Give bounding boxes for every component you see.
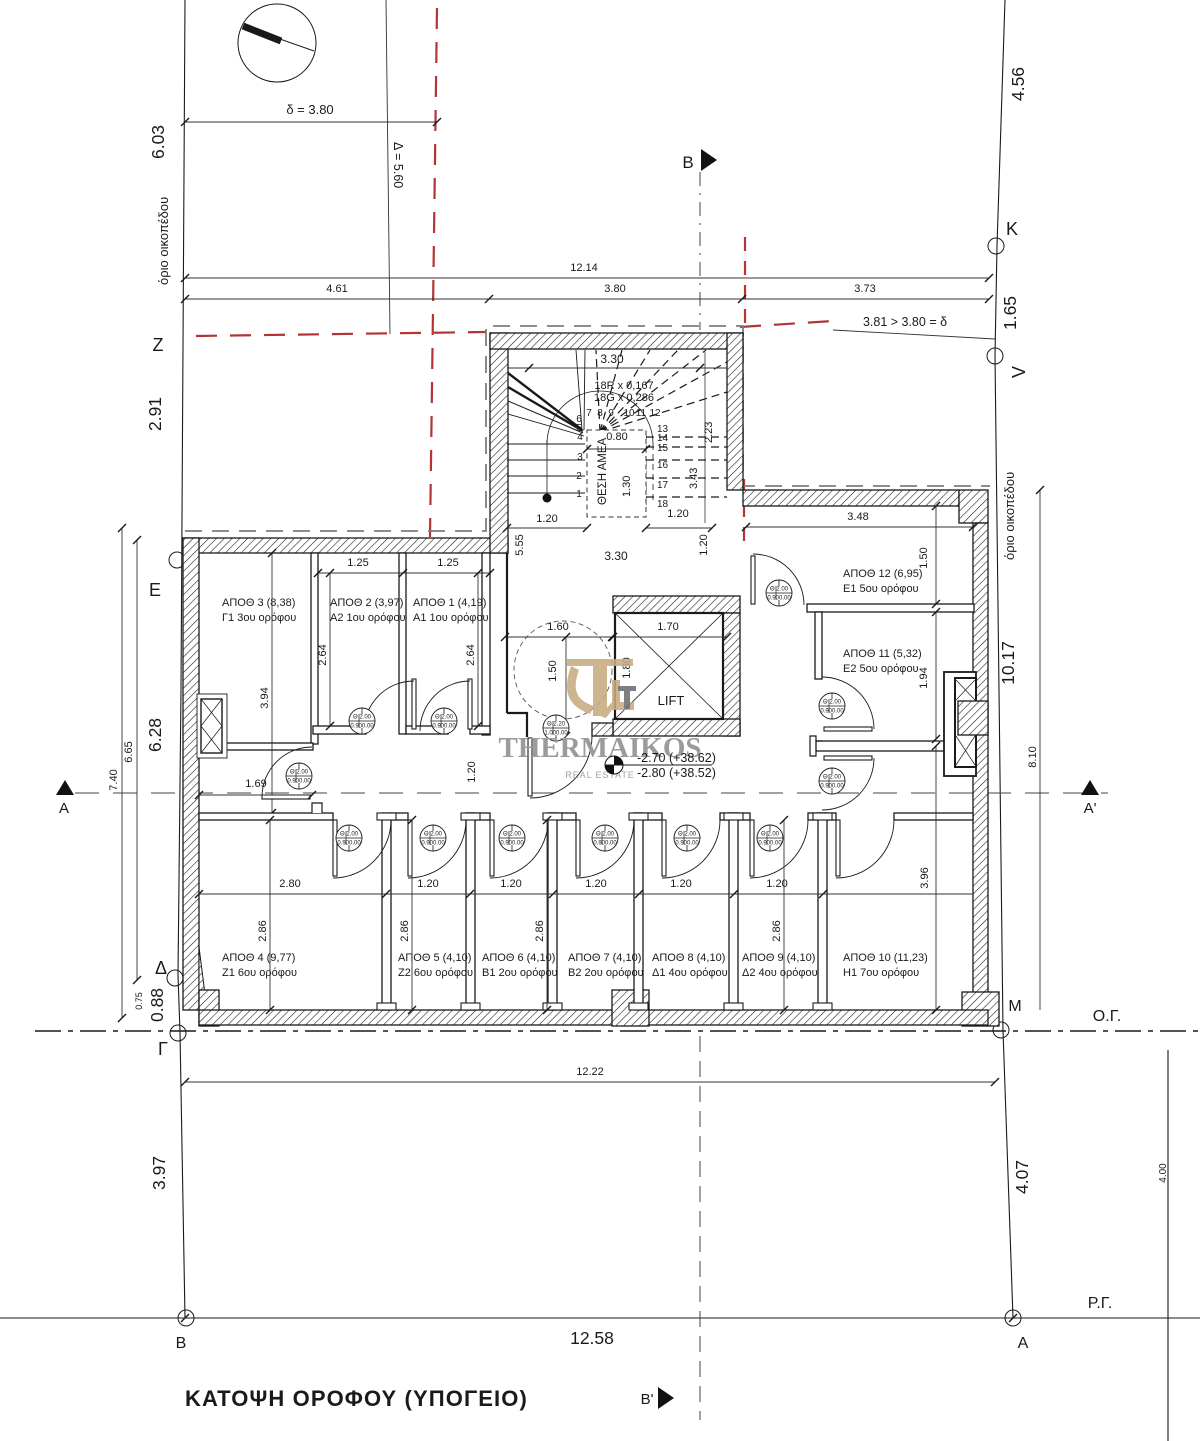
svg-text:B': B' [641, 1391, 654, 1408]
svg-text:12.14: 12.14 [570, 262, 598, 274]
svg-text:3.94: 3.94 [259, 687, 271, 708]
svg-text:7.40: 7.40 [108, 769, 120, 790]
svg-text:1.20: 1.20 [698, 534, 710, 555]
svg-text:ΑΠΟΘ 4 (9,77): ΑΠΟΘ 4 (9,77) [222, 952, 295, 964]
svg-text:3.80: 3.80 [604, 283, 625, 295]
svg-text:K: K [1006, 219, 1018, 239]
svg-text:6.65: 6.65 [123, 741, 135, 762]
svg-text:Δ = 5.60: Δ = 5.60 [391, 142, 405, 188]
svg-text:Η1 7ου ορόφου: Η1 7ου ορόφου [843, 967, 919, 979]
svg-text:1.69: 1.69 [245, 778, 266, 790]
svg-text:3.30: 3.30 [604, 549, 628, 563]
svg-text:A: A [59, 800, 69, 817]
svg-text:12.22: 12.22 [576, 1066, 604, 1078]
svg-text:3.97: 3.97 [149, 1156, 169, 1190]
svg-text:Λ: Λ [1008, 366, 1028, 378]
svg-text:2.86: 2.86 [257, 920, 269, 941]
svg-text:-2.70 (+38.62): -2.70 (+38.62) [637, 751, 716, 765]
svg-text:6.03: 6.03 [148, 125, 168, 159]
svg-text:0.80: 0.80 [606, 431, 627, 443]
svg-text:1.20: 1.20 [466, 761, 478, 782]
svg-text:2: 2 [576, 471, 582, 482]
svg-text:LIFT: LIFT [658, 693, 685, 708]
svg-text:Γ: Γ [158, 1039, 168, 1059]
svg-text:δ = 3.80: δ = 3.80 [286, 102, 333, 117]
svg-text:18R x 0,167: 18R x 0,167 [594, 380, 653, 392]
svg-text:ΑΠΟΘ 9 (4,10): ΑΠΟΘ 9 (4,10) [742, 952, 815, 964]
svg-text:ΑΠΟΘ 12 (6,95): ΑΠΟΘ 12 (6,95) [843, 568, 922, 580]
svg-text:Δ: Δ [155, 958, 167, 978]
svg-text:2.86: 2.86 [399, 920, 411, 941]
svg-text:B: B [682, 153, 693, 172]
svg-text:1.65: 1.65 [1000, 296, 1020, 330]
svg-text:0.900.00: 0.900.00 [350, 724, 374, 730]
svg-text:0.900.00: 0.900.00 [421, 841, 445, 847]
svg-text:B: B [176, 1335, 187, 1352]
svg-text:ΑΠΟΘ 2 (3,97): ΑΠΟΘ 2 (3,97) [330, 597, 403, 609]
svg-text:Z: Z [153, 335, 164, 355]
svg-text:15: 15 [657, 443, 669, 454]
svg-text:A: A [1018, 1335, 1029, 1352]
svg-text:0.900.00: 0.900.00 [337, 841, 361, 847]
svg-text:Ζ1 6ου ορόφου: Ζ1 6ου ορόφου [222, 967, 297, 979]
svg-text:0.88: 0.88 [147, 988, 167, 1022]
svg-text:Θ 2.00: Θ 2.00 [770, 587, 789, 593]
svg-text:Θ 2.00: Θ 2.00 [340, 832, 359, 838]
svg-text:1.20: 1.20 [417, 878, 438, 890]
svg-text:όριο οικοπέδου: όριο οικοπέδου [156, 197, 171, 285]
svg-text:2.80: 2.80 [279, 878, 300, 890]
svg-text:0.900.00: 0.900.00 [767, 596, 791, 602]
svg-text:2.91: 2.91 [145, 397, 165, 431]
svg-text:Θ 2.00: Θ 2.00 [678, 832, 697, 838]
svg-text:7: 7 [586, 408, 592, 419]
svg-text:ΑΠΟΘ 8 (4,10): ΑΠΟΘ 8 (4,10) [652, 952, 725, 964]
svg-text:-2.80 (+38.52): -2.80 (+38.52) [637, 766, 716, 780]
svg-text:2.86: 2.86 [771, 920, 783, 941]
svg-text:4.07: 4.07 [1012, 1160, 1032, 1194]
svg-text:A': A' [1084, 800, 1097, 817]
svg-text:Θ 2.00: Θ 2.00 [424, 832, 443, 838]
svg-text:0.900.00: 0.900.00 [758, 841, 782, 847]
svg-text:3.48: 3.48 [847, 511, 868, 523]
svg-text:Δ1 4ου ορόφου: Δ1 4ου ορόφου [652, 967, 728, 979]
svg-text:3.96: 3.96 [919, 867, 931, 888]
svg-text:Ρ.Γ.: Ρ.Γ. [1088, 1295, 1113, 1312]
svg-text:16: 16 [657, 460, 669, 471]
svg-text:Θ 2.00: Θ 2.00 [290, 770, 309, 776]
svg-text:1.60: 1.60 [547, 621, 568, 633]
svg-text:1: 1 [576, 489, 582, 500]
svg-text:11: 11 [636, 408, 647, 419]
svg-text:Θ 2.00: Θ 2.00 [435, 715, 454, 721]
svg-text:17: 17 [657, 480, 669, 491]
svg-text:Ζ2 6ου ορόφου: Ζ2 6ου ορόφου [398, 967, 473, 979]
svg-text:1.70: 1.70 [657, 621, 678, 633]
svg-text:0.900.00: 0.900.00 [593, 841, 617, 847]
svg-text:2.64: 2.64 [317, 644, 329, 665]
svg-text:ΑΠΟΘ 5 (4,10): ΑΠΟΘ 5 (4,10) [398, 952, 471, 964]
svg-text:Α1 1ου ορόφου: Α1 1ου ορόφου [413, 612, 489, 624]
svg-text:2.23: 2.23 [703, 422, 715, 443]
svg-text:Θ 2.20: Θ 2.20 [547, 722, 566, 728]
svg-text:8.10: 8.10 [1027, 746, 1039, 767]
svg-text:Α2 1ου ορόφου: Α2 1ου ορόφου [330, 612, 406, 624]
svg-text:0.900.00: 0.900.00 [820, 709, 844, 715]
svg-text:0.900.00: 0.900.00 [287, 779, 311, 785]
svg-text:4.00: 4.00 [1158, 1163, 1169, 1183]
svg-text:Β1 2ου ορόφου: Β1 2ου ορόφου [482, 967, 558, 979]
svg-text:REAL ESTATE: REAL ESTATE [565, 770, 634, 780]
svg-text:όριο οικοπέδου: όριο οικοπέδου [1002, 472, 1017, 560]
svg-text:8: 8 [597, 408, 603, 419]
svg-text:6: 6 [576, 414, 582, 425]
svg-text:12.58: 12.58 [570, 1328, 614, 1348]
svg-text:3: 3 [577, 452, 583, 463]
svg-text:1.25: 1.25 [347, 557, 368, 569]
svg-text:Δ2 4ου ορόφου: Δ2 4ου ορόφου [742, 967, 818, 979]
svg-text:4.61: 4.61 [326, 283, 347, 295]
svg-text:1.25: 1.25 [437, 557, 458, 569]
svg-text:10: 10 [623, 408, 635, 419]
svg-text:1.20: 1.20 [585, 878, 606, 890]
svg-text:4.56: 4.56 [1008, 67, 1028, 101]
svg-text:M: M [1008, 998, 1021, 1015]
svg-text:Θ 2.00: Θ 2.00 [823, 700, 842, 706]
svg-text:ΚΑΤΟΨΗ ΟΡΟΦΟΥ (ΥΠΟΓΕΙΟ): ΚΑΤΟΨΗ ΟΡΟΦΟΥ (ΥΠΟΓΕΙΟ) [185, 1386, 528, 1411]
svg-text:1.20: 1.20 [667, 508, 688, 520]
svg-text:Ε1 5ου ορόφου: Ε1 5ου ορόφου [843, 583, 919, 595]
svg-text:Θ 2.00: Θ 2.00 [353, 715, 372, 721]
svg-text:0.75: 0.75 [134, 992, 144, 1010]
svg-text:10.17: 10.17 [998, 641, 1018, 685]
svg-text:3.73: 3.73 [854, 283, 875, 295]
svg-text:ΑΠΟΘ 1 (4,19): ΑΠΟΘ 1 (4,19) [413, 597, 486, 609]
svg-text:ΑΠΟΘ 7 (4,10): ΑΠΟΘ 7 (4,10) [568, 952, 641, 964]
svg-text:2.86: 2.86 [534, 920, 546, 941]
svg-text:0.900.00: 0.900.00 [500, 841, 524, 847]
svg-text:1.20: 1.20 [766, 878, 787, 890]
svg-text:1.30: 1.30 [621, 476, 633, 497]
svg-text:Θ 2.00: Θ 2.00 [823, 775, 842, 781]
svg-text:0.900.00: 0.900.00 [820, 784, 844, 790]
svg-text:ΘΕΣΗ ΑΜΕΑ: ΘΕΣΗ ΑΜΕΑ [597, 437, 609, 505]
svg-text:9: 9 [608, 408, 614, 419]
svg-text:ΑΠΟΘ 6 (4,10): ΑΠΟΘ 6 (4,10) [482, 952, 555, 964]
svg-text:Θ 2.00: Θ 2.00 [503, 832, 522, 838]
svg-text:1.94: 1.94 [918, 667, 930, 688]
svg-text:Ε2 5ου ορόφου: Ε2 5ου ορόφου [843, 663, 919, 675]
svg-text:Θ 2.00: Θ 2.00 [761, 832, 780, 838]
svg-text:1.50: 1.50 [918, 547, 930, 568]
svg-text:3.30: 3.30 [600, 352, 624, 366]
svg-text:ΑΠΟΘ 10 (11,23): ΑΠΟΘ 10 (11,23) [843, 952, 928, 964]
svg-text:Β2 2ου ορόφου: Β2 2ου ορόφου [568, 967, 644, 979]
svg-text:18G x 0,286: 18G x 0,286 [594, 392, 654, 404]
svg-text:Ο.Γ.: Ο.Γ. [1093, 1008, 1121, 1025]
svg-text:Γ1 3ου ορόφου: Γ1 3ου ορόφου [222, 612, 296, 624]
svg-text:ΑΠΟΘ 3 (8,38): ΑΠΟΘ 3 (8,38) [222, 597, 295, 609]
svg-text:5.55: 5.55 [514, 534, 526, 555]
svg-text:ΑΠΟΘ 11 (5,32): ΑΠΟΘ 11 (5,32) [843, 648, 922, 660]
svg-text:E: E [149, 580, 161, 600]
svg-text:1.20: 1.20 [670, 878, 691, 890]
svg-text:2.64: 2.64 [465, 644, 477, 665]
svg-text:0.900.00: 0.900.00 [432, 724, 456, 730]
svg-text:6.28: 6.28 [145, 718, 165, 752]
svg-text:3.81 > 3.80 = δ: 3.81 > 3.80 = δ [863, 315, 947, 329]
svg-text:3.43: 3.43 [688, 468, 700, 489]
svg-text:Θ 2.00: Θ 2.00 [596, 832, 615, 838]
svg-text:1.20: 1.20 [500, 878, 521, 890]
svg-text:0.900.00: 0.900.00 [675, 841, 699, 847]
svg-text:1.50: 1.50 [547, 660, 559, 681]
svg-text:12: 12 [649, 408, 661, 419]
svg-text:1.20: 1.20 [536, 513, 557, 525]
